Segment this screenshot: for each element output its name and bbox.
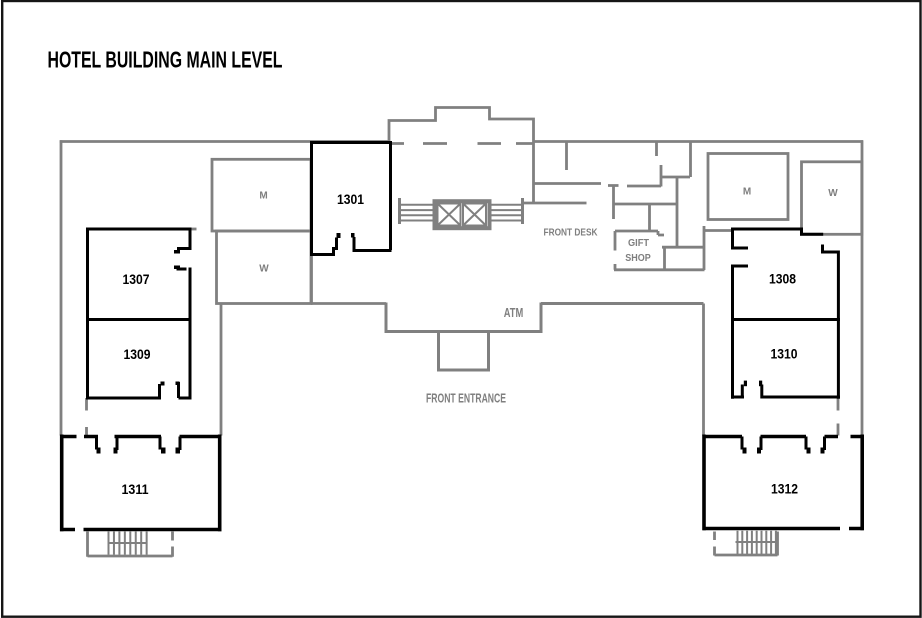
svg-text:FRONT ENTRANCE: FRONT ENTRANCE [426,390,506,405]
svg-text:1309: 1309 [124,346,151,362]
svg-text:W: W [828,188,838,199]
svg-text:1312: 1312 [771,481,798,497]
svg-text:SHOP: SHOP [625,253,651,264]
svg-text:ATM: ATM [504,306,524,320]
svg-text:FRONT DESK: FRONT DESK [544,228,599,239]
svg-text:M: M [259,191,267,202]
svg-text:GIFT: GIFT [628,238,649,249]
svg-text:HOTEL BUILDING MAIN LEVEL: HOTEL BUILDING MAIN LEVEL [48,47,283,73]
svg-text:1308: 1308 [769,271,796,287]
svg-text:1301: 1301 [337,191,364,207]
svg-text:1311: 1311 [122,481,149,497]
svg-text:W: W [259,264,269,275]
svg-text:1307: 1307 [123,271,150,287]
svg-text:1310: 1310 [771,346,798,362]
svg-text:M: M [743,187,751,198]
